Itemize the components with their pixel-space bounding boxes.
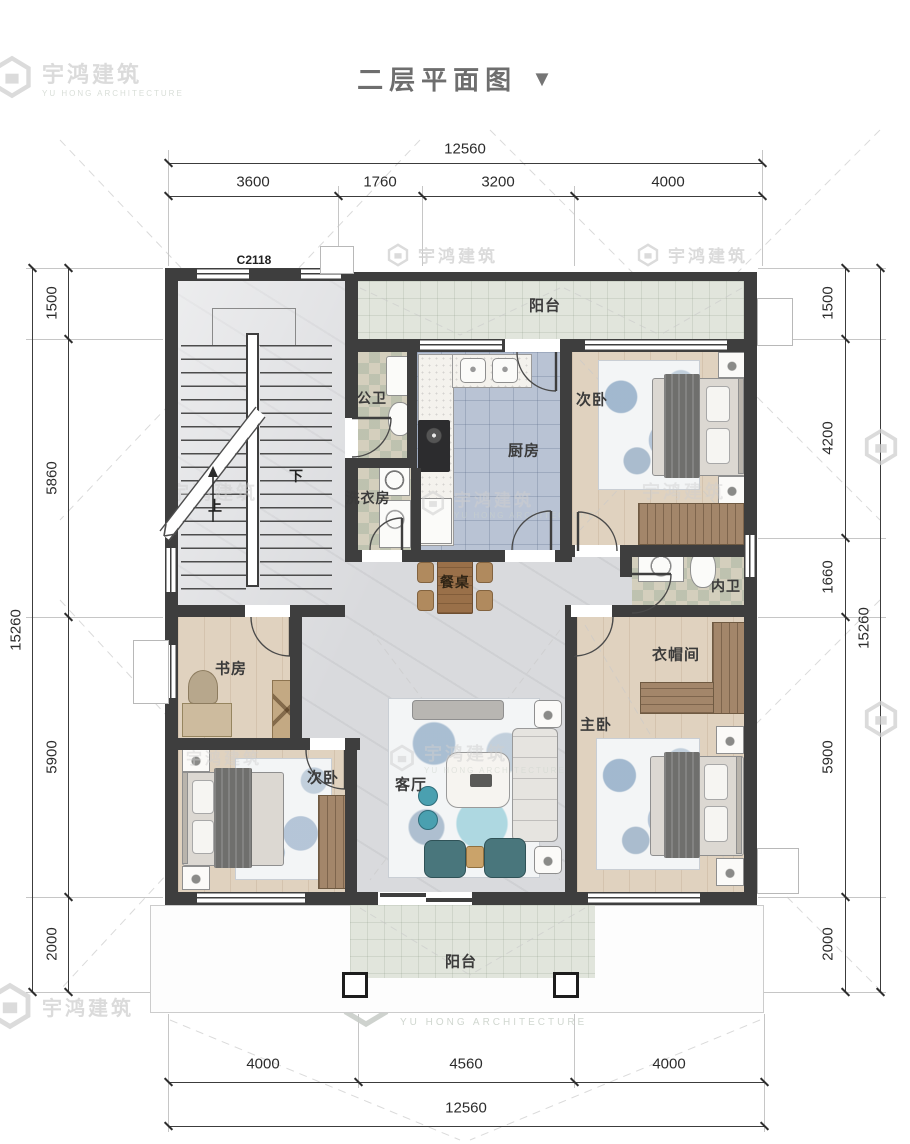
bay-window: [133, 640, 169, 704]
door-opening: [505, 550, 555, 562]
sink-basin: [492, 358, 518, 383]
sliding-door-panel: [380, 893, 426, 897]
balcony-column: [342, 972, 368, 998]
dim-line-top-segments: [168, 196, 762, 197]
wall: [165, 281, 178, 905]
door-opening: [245, 605, 290, 617]
label-dining-table: 餐桌: [440, 572, 470, 592]
armchair: [484, 838, 526, 878]
exterior-pier: [757, 298, 793, 346]
cloakroom-wardrobe: [712, 622, 746, 714]
yuhong-logo-icon: [862, 428, 900, 466]
dim-left-seg2: 5860: [44, 461, 61, 494]
sink-basin: [460, 358, 486, 383]
balcony-column: [553, 972, 579, 998]
pillow: [704, 806, 728, 842]
dim-left-total: 15260: [8, 609, 25, 651]
stove: [418, 420, 450, 472]
pillow: [706, 428, 730, 464]
wall: [620, 557, 632, 577]
label-stair-up: 上: [208, 496, 222, 516]
extension-line: [168, 150, 169, 266]
dim-line-left-total: [32, 268, 33, 992]
label-balcony-bottom: 阳台: [445, 951, 477, 972]
door-opening: [575, 545, 620, 557]
window-master: [588, 892, 700, 904]
nightstand: [182, 866, 210, 890]
door-opening: [310, 738, 345, 750]
dim-line-bottom-segments: [168, 1082, 764, 1083]
window-stair: [165, 548, 177, 592]
dim-bottom-total: 12560: [445, 1100, 487, 1117]
dim-top-seg1: 3600: [236, 174, 269, 191]
bed-headboard: [736, 756, 742, 854]
dining-chair: [476, 562, 493, 583]
side-table: [534, 846, 562, 874]
dim-right-seg2: 4200: [820, 421, 837, 454]
wall-balcony-rail: [345, 272, 757, 281]
door-opening-balcony: [505, 339, 560, 352]
stool: [418, 810, 438, 830]
wall: [290, 617, 302, 750]
exterior-pier: [320, 246, 354, 274]
dim-top-seg2: 1760: [363, 174, 396, 191]
pillow: [706, 386, 730, 422]
dim-left-seg4: 2000: [44, 927, 61, 960]
wall: [345, 750, 357, 892]
dim-left-seg3: 5900: [44, 740, 61, 773]
page-title-row: 二层平面图 ▼: [0, 60, 910, 97]
extension-line: [26, 339, 163, 340]
extension-line: [26, 897, 163, 898]
bed-blanket: [664, 752, 700, 858]
title-arrow-icon: ▼: [531, 66, 553, 92]
cloakroom-wardrobe: [640, 682, 714, 714]
label-cloakroom: 衣帽间: [652, 644, 700, 665]
label-laundry: 洗衣房: [346, 488, 391, 508]
bed-headboard: [182, 772, 188, 864]
window: [197, 268, 249, 280]
label-window-code: C2118: [237, 253, 272, 267]
label-study: 书房: [215, 658, 247, 679]
desk: [182, 703, 232, 737]
wall: [565, 617, 577, 892]
door-opening: [345, 418, 358, 458]
label-kitchen: 厨房: [508, 440, 540, 461]
stair-treads-left: [181, 345, 246, 590]
window-ensuite: [744, 535, 756, 577]
dim-bottom-seg1: 4000: [246, 1056, 279, 1073]
sliding-door-panel: [426, 898, 472, 902]
dining-chair: [476, 590, 493, 611]
dim-right-seg4: 5900: [820, 740, 837, 773]
extension-line: [26, 617, 163, 618]
dim-top-total: 12560: [444, 141, 486, 158]
dining-chair: [417, 590, 434, 611]
label-bedroom-top-right: 次卧: [576, 389, 608, 410]
extension-line: [762, 150, 763, 266]
yuhong-logo-icon: [388, 744, 416, 772]
nightstand: [716, 858, 744, 886]
dim-right-seg3: 1660: [820, 560, 837, 593]
nightstand: [716, 726, 744, 754]
extension-line: [764, 1014, 765, 1132]
pillow: [192, 820, 214, 854]
dim-line-top-total: [168, 163, 762, 164]
armchair: [424, 840, 466, 878]
dim-right-seg1: 1500: [820, 286, 837, 319]
extension-line: [758, 538, 886, 539]
yuhong-logo-icon: [386, 243, 410, 267]
extension-line: [758, 992, 886, 993]
dim-line-left-segments: [68, 268, 69, 992]
extension-line: [758, 268, 886, 269]
desk-chair: [188, 670, 218, 704]
side-table: [534, 700, 562, 728]
yuhong-logo-icon: [636, 243, 660, 267]
exterior-pier: [757, 848, 799, 894]
stair-rail: [246, 333, 259, 587]
dim-line-right-total: [880, 268, 881, 992]
watermark: 宇鸿建筑: [636, 242, 748, 267]
label-bedroom-bottom-left: 次卧: [307, 767, 339, 788]
yuhong-logo-icon: [420, 490, 446, 516]
nightstand: [718, 352, 746, 378]
label-master-bedroom: 主卧: [580, 714, 612, 735]
extension-line: [26, 268, 163, 269]
dim-line-right-segments: [845, 268, 846, 992]
yuhong-logo-icon: [862, 700, 900, 738]
watermark: 宇鸿建筑: [386, 242, 498, 267]
bed-blanket: [664, 374, 700, 478]
dim-right-total: 15260: [856, 607, 873, 649]
label-stair-down: 下: [289, 466, 303, 486]
dim-top-seg4: 4000: [651, 174, 684, 191]
coffee-table-tray: [470, 774, 492, 787]
watermark: [862, 700, 900, 738]
window-kitchen: [420, 339, 502, 351]
door-opening: [362, 550, 402, 562]
label-balcony-top: 阳台: [529, 295, 561, 316]
floor-plan-page: 二层平面图 ▼ 12560 3600 1760 3200 4000 4000 4…: [0, 0, 910, 1144]
label-living-room: 客厅: [395, 774, 427, 795]
door-opening: [571, 605, 612, 617]
window-bedroom: [197, 892, 305, 904]
extension-line: [168, 1014, 169, 1132]
dim-top-seg3: 3200: [481, 174, 514, 191]
window-bedroom: [585, 339, 727, 351]
dim-right-seg5: 2000: [820, 927, 837, 960]
dim-left-seg1: 1500: [44, 286, 61, 319]
dim-bottom-seg2: 4560: [449, 1056, 482, 1073]
watermark: [862, 428, 900, 466]
watermark: 宇鸿建筑: [642, 478, 726, 504]
watermark: 宇鸿建筑YU HONG ARCHITECTURE: [388, 740, 566, 775]
wall: [560, 352, 572, 562]
tv-console: [412, 700, 504, 720]
extension-line: [758, 897, 886, 898]
pillow: [192, 780, 214, 814]
side-table-small: [466, 846, 484, 868]
pillow: [704, 764, 728, 800]
wall: [411, 468, 421, 556]
dining-chair: [417, 562, 434, 583]
wardrobe: [638, 503, 746, 545]
dim-line-bottom-total: [168, 1126, 764, 1127]
label-ensuite-bath: 内卫: [711, 576, 741, 596]
wall: [407, 352, 417, 458]
wall: [744, 281, 757, 905]
label-public-bath: 公卫: [357, 388, 387, 408]
dim-bottom-seg3: 4000: [652, 1056, 685, 1073]
bed-blanket: [214, 768, 252, 868]
wall: [345, 458, 417, 468]
page-title: 二层平面图: [357, 60, 517, 97]
